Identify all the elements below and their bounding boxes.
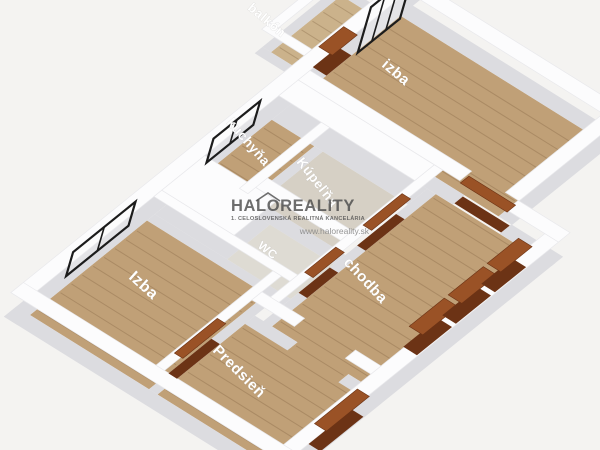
floor-plan-canvas: balkón izba kuchyňa Kúpeľňa WC chodba Iz… bbox=[0, 0, 600, 450]
floor-plan-rendering: balkón izba kuchyňa Kúpeľňa WC chodba Iz… bbox=[0, 0, 600, 450]
